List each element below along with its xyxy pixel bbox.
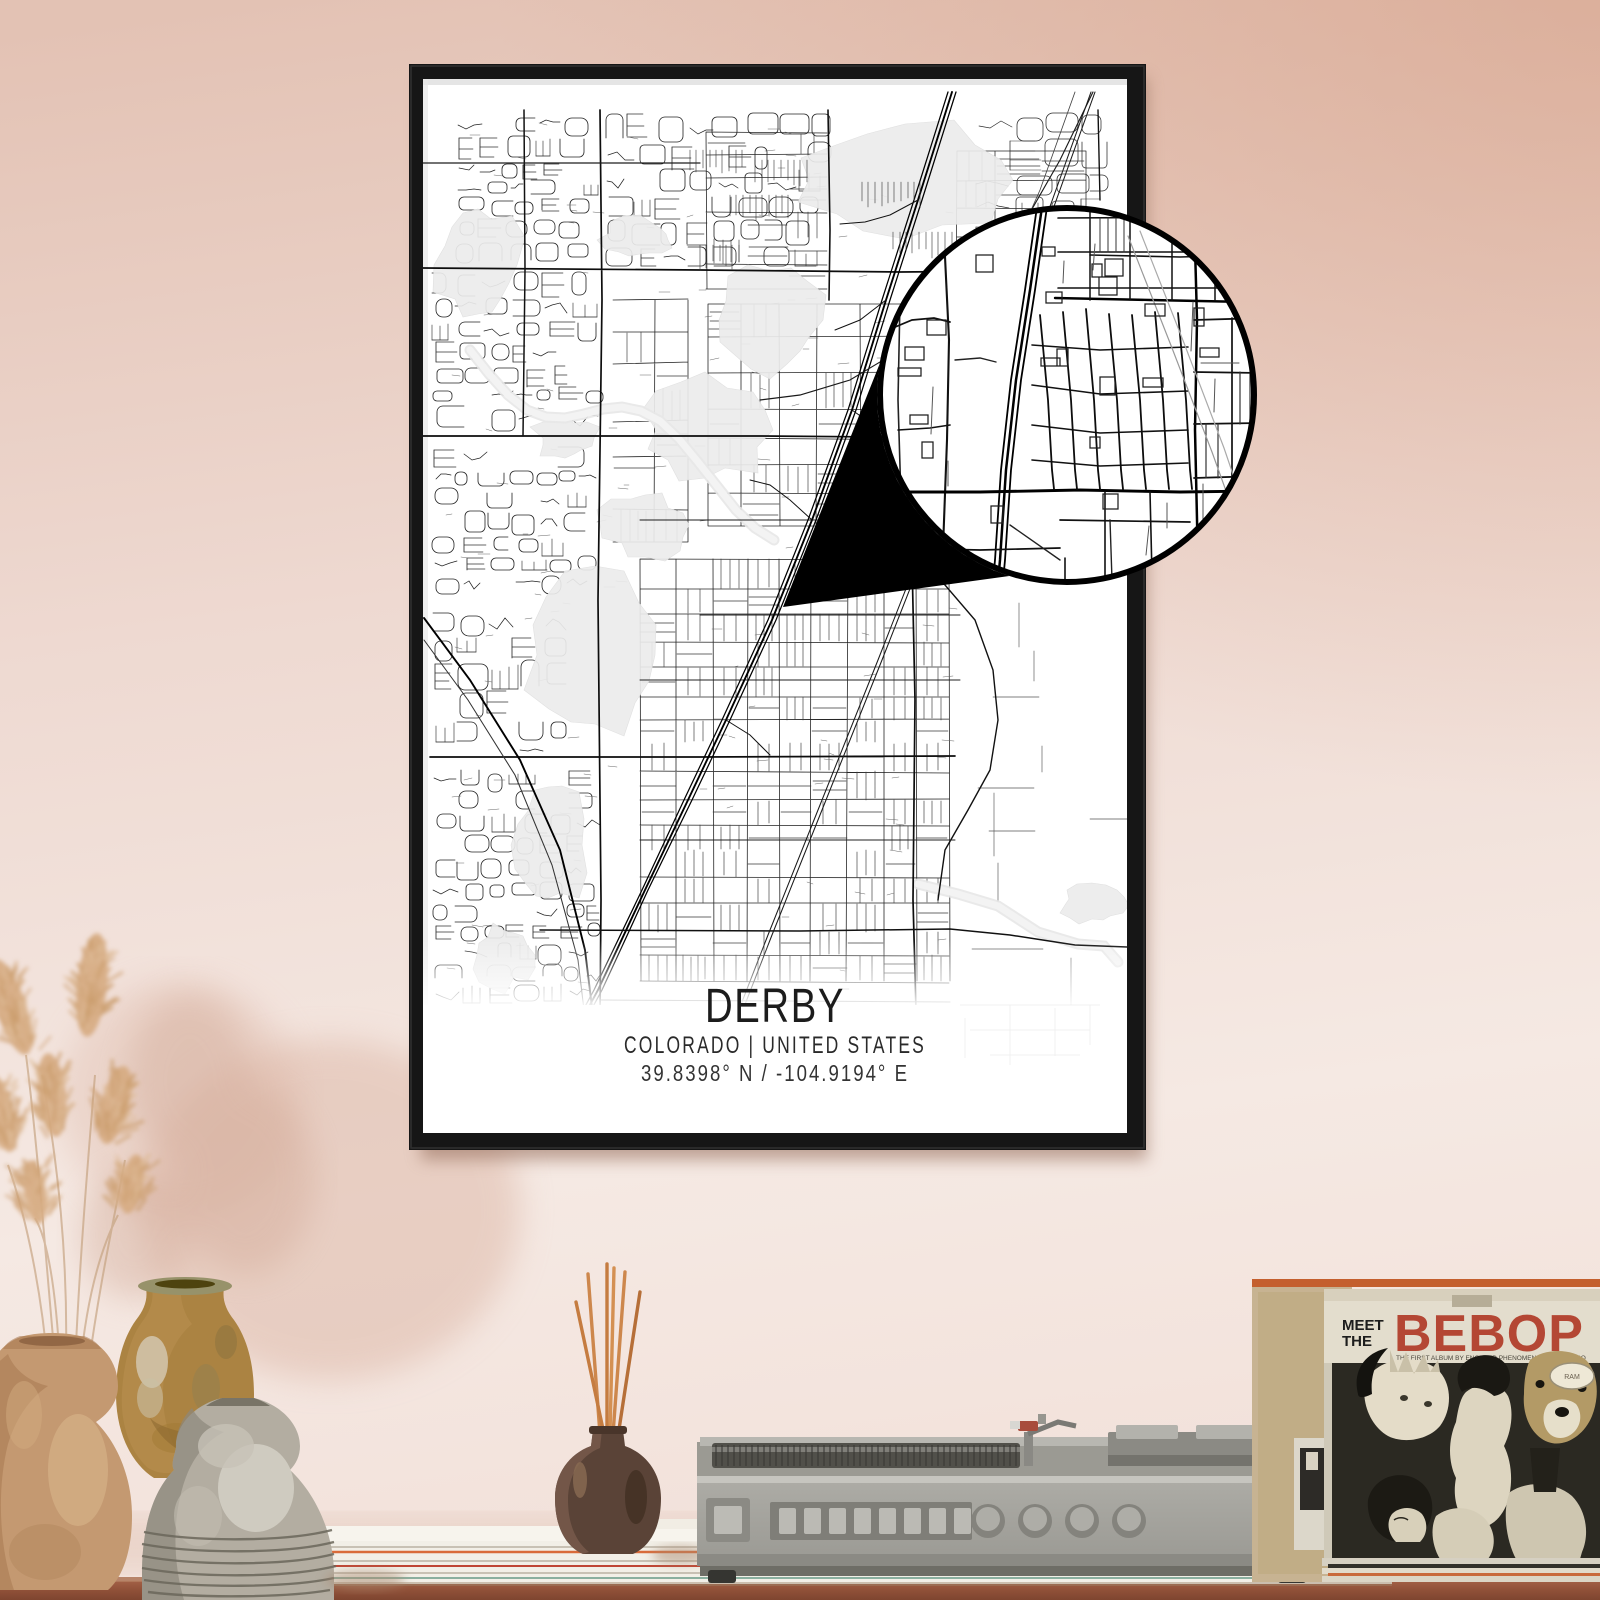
- svg-text:RAM: RAM: [1564, 1374, 1580, 1381]
- svg-text:39.8398° N / -104.9194° E: 39.8398° N / -104.9194° E: [641, 1060, 909, 1086]
- svg-text:DERBY: DERBY: [705, 980, 845, 1033]
- svg-text:MEET: MEET: [1342, 1317, 1384, 1334]
- svg-text:THE: THE: [1342, 1333, 1372, 1350]
- svg-text:COLORADO | UNITED STATES: COLORADO | UNITED STATES: [624, 1032, 926, 1059]
